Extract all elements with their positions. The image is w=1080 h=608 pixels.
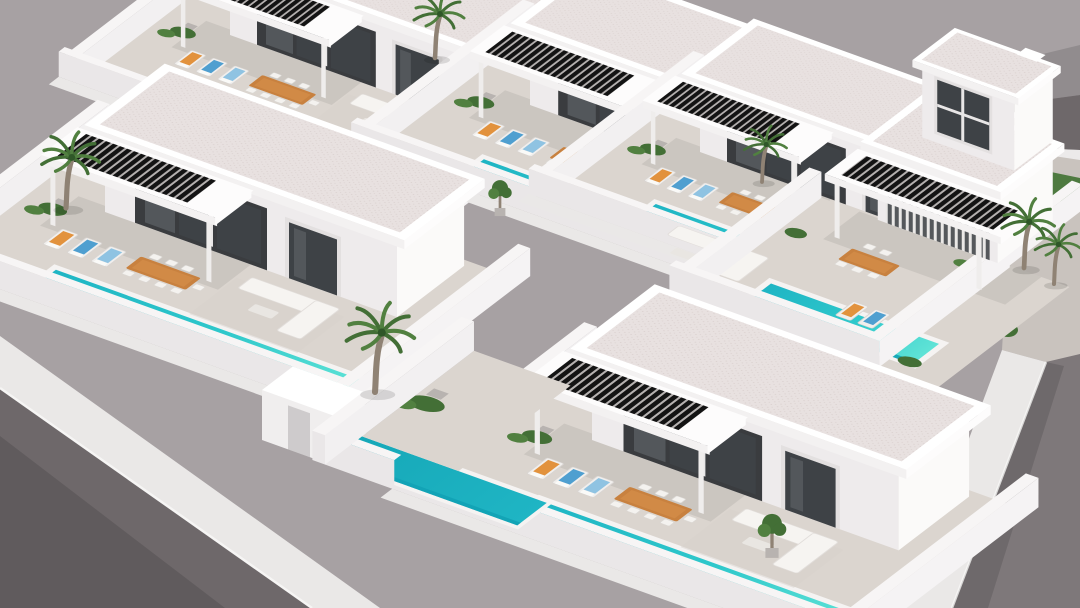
gate-door bbox=[288, 405, 310, 457]
render-stage bbox=[0, 0, 1080, 608]
architectural-render-image bbox=[0, 0, 1080, 608]
